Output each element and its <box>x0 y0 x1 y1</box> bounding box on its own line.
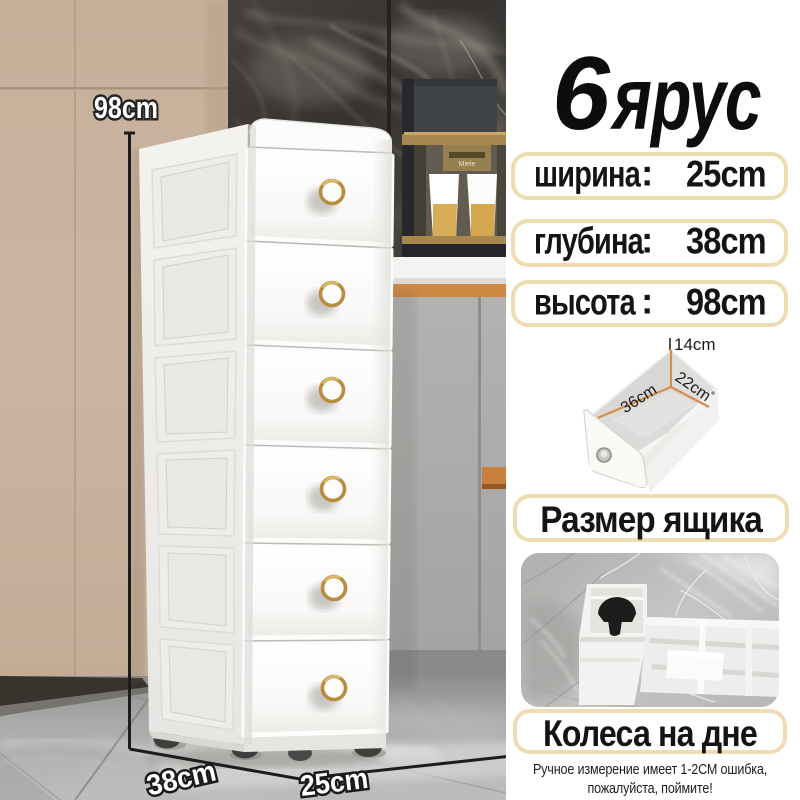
svg-text:Miele: Miele <box>459 161 476 168</box>
svg-text:98cm: 98cm <box>94 90 158 125</box>
